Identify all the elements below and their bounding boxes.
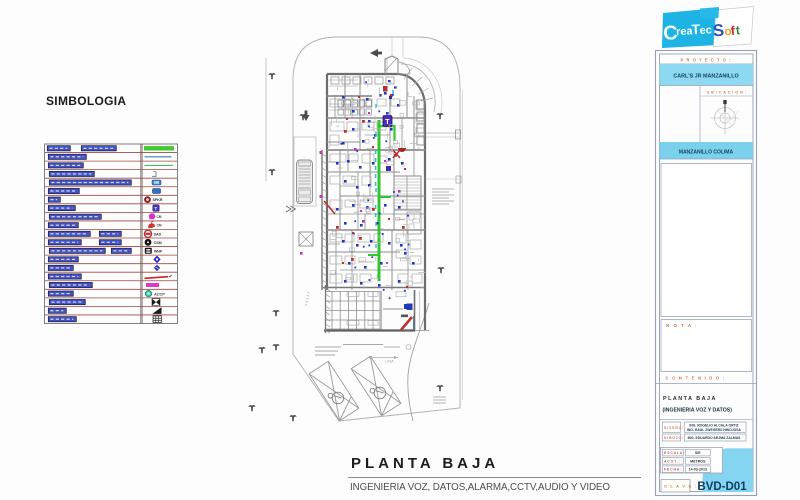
svg-text:C L A V E :: C L A V E :	[664, 484, 697, 489]
svg-text:CM: CM	[157, 215, 162, 219]
svg-text:D I S E Ñ O :: D I S E Ñ O :	[664, 425, 683, 430]
svg-text:E S C A L A :: E S C A L A :	[664, 451, 684, 455]
svg-text:WHF: WHF	[154, 249, 163, 253]
svg-text:PLANTA BAJA: PLANTA BAJA	[663, 396, 717, 402]
svg-text:METROS: METROS	[690, 459, 706, 463]
svg-text:14-03-2013: 14-03-2013	[689, 468, 707, 472]
svg-text:ec: ec	[699, 24, 712, 37]
svg-text:(INGENIERIA VOZ Y DATOS): (INGENIERIA VOZ Y DATOS)	[663, 408, 733, 414]
svg-text:S: S	[712, 21, 725, 41]
svg-text:SAD: SAD	[154, 232, 162, 236]
svg-text:ING. RAUL ZWEGERS HINOJOSA: ING. RAUL ZWEGERS HINOJOSA	[687, 428, 742, 432]
svg-text:U B I C A C I O N :: U B I C A C I O N :	[707, 91, 747, 95]
svg-text:ACCP: ACCP	[153, 292, 165, 296]
svg-text:CARL'S JR MANZANILLO: CARL'S JR MANZANILLO	[673, 74, 738, 80]
svg-text:BVD-D01: BVD-D01	[697, 481, 747, 493]
svg-text:C O N T E N I D O :: C O N T E N I D O :	[666, 376, 726, 381]
svg-text:D I B U J O :: D I B U J O :	[664, 436, 683, 440]
svg-text:P R O Y E C T O :: P R O Y E C T O :	[681, 58, 732, 63]
svg-text:ING. ROGELIO ALCALA ORTIZ: ING. ROGELIO ALCALA ORTIZ	[689, 423, 738, 427]
svg-text:CSM: CSM	[154, 241, 162, 245]
svg-text:ING. EDUARDO ARJMA ZALMAS: ING. EDUARDO ARJMA ZALMAS	[688, 436, 742, 440]
svg-text:A C O T . :: A C O T . :	[664, 459, 680, 463]
svg-text:T: T	[154, 206, 157, 211]
svg-text:F E C H A :: F E C H A :	[664, 468, 681, 472]
svg-text:CM: CM	[157, 224, 162, 228]
svg-text:LOSA: LOSA	[385, 360, 394, 364]
svg-text:N O T A :: N O T A :	[666, 323, 698, 328]
svg-text:x x x x x: x x x x x	[303, 291, 310, 306]
svg-text:S/E: S/E	[695, 451, 701, 455]
svg-text:MANZANILLO COLIMA: MANZANILLO COLIMA	[679, 150, 734, 156]
svg-text:SPKR: SPKR	[153, 198, 163, 202]
